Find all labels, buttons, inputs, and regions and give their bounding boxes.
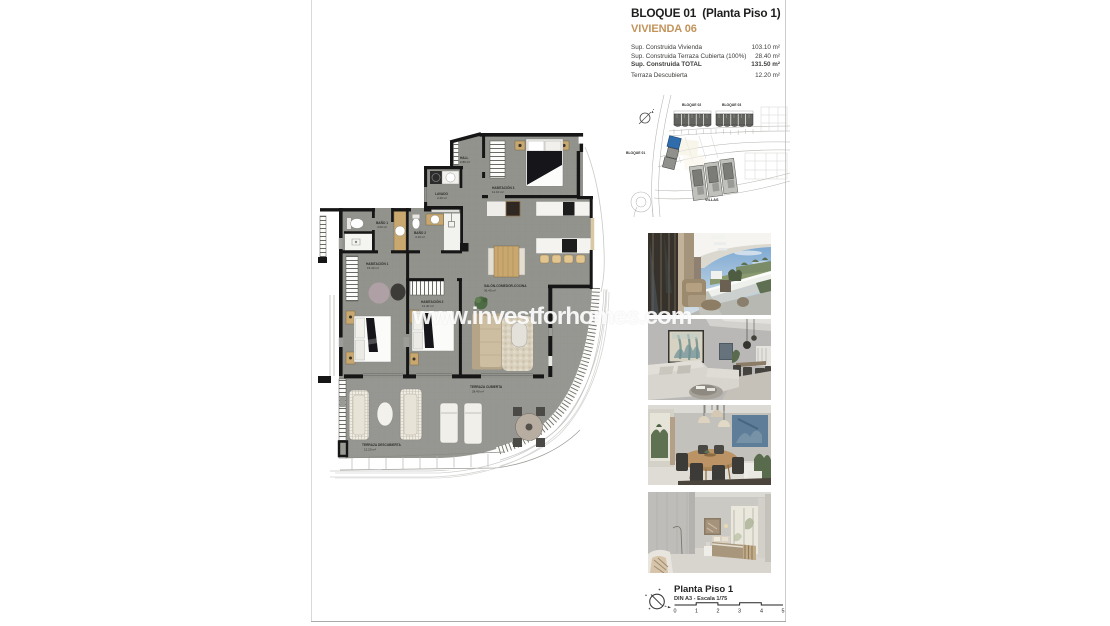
svg-text:5: 5 <box>782 609 785 615</box>
svg-text:0: 0 <box>674 609 677 615</box>
svg-text:4: 4 <box>760 609 763 615</box>
svg-text:12.20 m²: 12.20 m² <box>364 448 376 452</box>
svg-text:3: 3 <box>738 609 741 615</box>
svg-text:11.10 m²: 11.10 m² <box>492 190 504 194</box>
svg-text:BLOQUE 01: BLOQUE 01 <box>626 151 645 155</box>
svg-text:2.20 m²: 2.20 m² <box>437 196 447 200</box>
svg-text:TERRAZA CUBIERTA: TERRAZA CUBIERTA <box>470 385 503 389</box>
svg-text:2.80 m²: 2.80 m² <box>460 160 470 164</box>
svg-text:4.00 m²: 4.00 m² <box>377 225 387 229</box>
svg-text:36.40 m²: 36.40 m² <box>484 289 496 293</box>
svg-text:BLOQUE 03: BLOQUE 03 <box>722 103 741 107</box>
svg-text:15.40 m²: 15.40 m² <box>367 266 379 270</box>
svg-text:VILLAS: VILLAS <box>705 198 719 202</box>
svg-text:4.10 m²: 4.10 m² <box>415 235 425 239</box>
svg-text:2: 2 <box>717 609 720 615</box>
svg-text:TERRAZA DESCUBIERTA: TERRAZA DESCUBIERTA <box>362 443 401 447</box>
svg-text:1: 1 <box>695 609 698 615</box>
svg-text:SALÓN-COMEDOR-COCINA: SALÓN-COMEDOR-COCINA <box>484 283 527 288</box>
svg-text:28.40 m²: 28.40 m² <box>472 390 484 394</box>
svg-text:BLOQUE 02: BLOQUE 02 <box>682 103 701 107</box>
